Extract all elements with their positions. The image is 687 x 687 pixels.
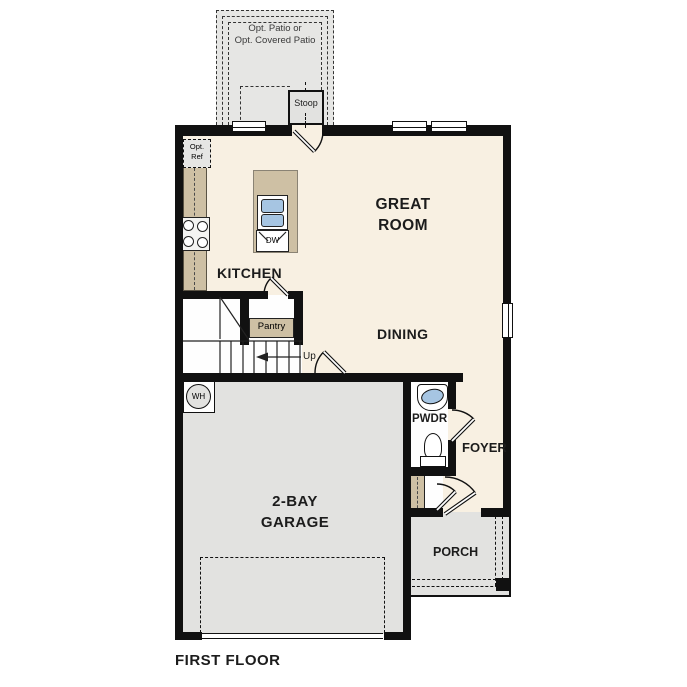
patio-label: Opt. Patio or Opt. Covered Patio <box>216 23 334 47</box>
powder-label: PWDR <box>412 413 447 425</box>
patio-slab-dash-top <box>240 86 290 87</box>
porch-dash-vertical-2 <box>502 516 503 580</box>
patio-label-line2: Opt. Covered Patio <box>216 35 334 47</box>
sink-bowl-top <box>261 199 284 213</box>
porch-post <box>496 578 509 591</box>
wall-pantry-right <box>294 297 303 345</box>
pantry-label: Pantry <box>249 321 294 332</box>
first-floor-plan: Opt. Patio or Opt. Covered Patio Stoop O… <box>0 0 687 687</box>
great-room-label: GREAT ROOM <box>343 194 463 236</box>
porch-dash-horizontal-2 <box>412 586 503 587</box>
wall-garage-right <box>403 373 411 640</box>
wall-powder-right-lower <box>448 440 456 476</box>
wall-garage-bottom-right <box>384 632 411 640</box>
garage-door-panel <box>202 633 383 639</box>
porch-dash-horizontal-1 <box>412 579 496 580</box>
garage-line1: 2-BAY <box>235 491 355 512</box>
sink-bowl-bottom <box>261 214 284 227</box>
opt-ref-line2: Ref <box>183 152 211 162</box>
wall-kitchen-bottom <box>175 291 268 299</box>
dining-label: DINING <box>377 326 428 342</box>
toilet-tank <box>420 456 446 467</box>
wall-garage-top <box>175 373 463 382</box>
up-label: Up <box>303 351 316 362</box>
foyer-label: FOYER <box>462 440 507 455</box>
window-dining-right <box>502 303 513 338</box>
window-greatroom-top-1 <box>392 121 427 132</box>
window-greatroom-top-2 <box>431 121 467 132</box>
kitchen-label: KITCHEN <box>217 265 282 281</box>
cooktop-burner-2 <box>197 221 208 232</box>
water-heater-label: WH <box>186 392 211 401</box>
stoop-tick-bottom <box>305 113 306 128</box>
cooktop-burner-4 <box>197 237 208 248</box>
wall-powder-right-upper <box>448 381 456 409</box>
wall-left <box>175 125 183 640</box>
window-kitchen-top <box>232 121 266 132</box>
great-room-line1: GREAT <box>343 194 463 215</box>
wall-garage-bottom-left <box>175 632 202 640</box>
plan-title: FIRST FLOOR <box>175 652 281 669</box>
wall-foyer-bottom-right <box>481 508 511 517</box>
garage-line2: GARAGE <box>235 512 355 533</box>
stoop-label: Stoop <box>288 98 324 108</box>
garage-door-dash-outline <box>200 557 385 633</box>
garage-label: 2-BAY GARAGE <box>235 491 355 533</box>
wall-pantry-left <box>240 297 249 345</box>
cooktop-burner-3 <box>183 236 194 247</box>
dishwasher-label: DW <box>256 236 289 245</box>
optional-refrigerator-label: Opt. Ref <box>183 142 211 162</box>
patio-slab-dash-left <box>240 86 241 125</box>
stoop-tick-top <box>305 82 306 91</box>
porch-label: PORCH <box>433 545 478 559</box>
patio-label-line1: Opt. Patio or <box>216 23 334 35</box>
porch-dash-vertical-1 <box>495 516 496 586</box>
opt-ref-line1: Opt. <box>183 142 211 152</box>
great-room-line2: ROOM <box>343 215 463 236</box>
wall-powder-bottom <box>403 467 448 476</box>
cooktop-burner-1 <box>183 220 194 231</box>
wall-foyer-bottom-left <box>403 508 443 517</box>
